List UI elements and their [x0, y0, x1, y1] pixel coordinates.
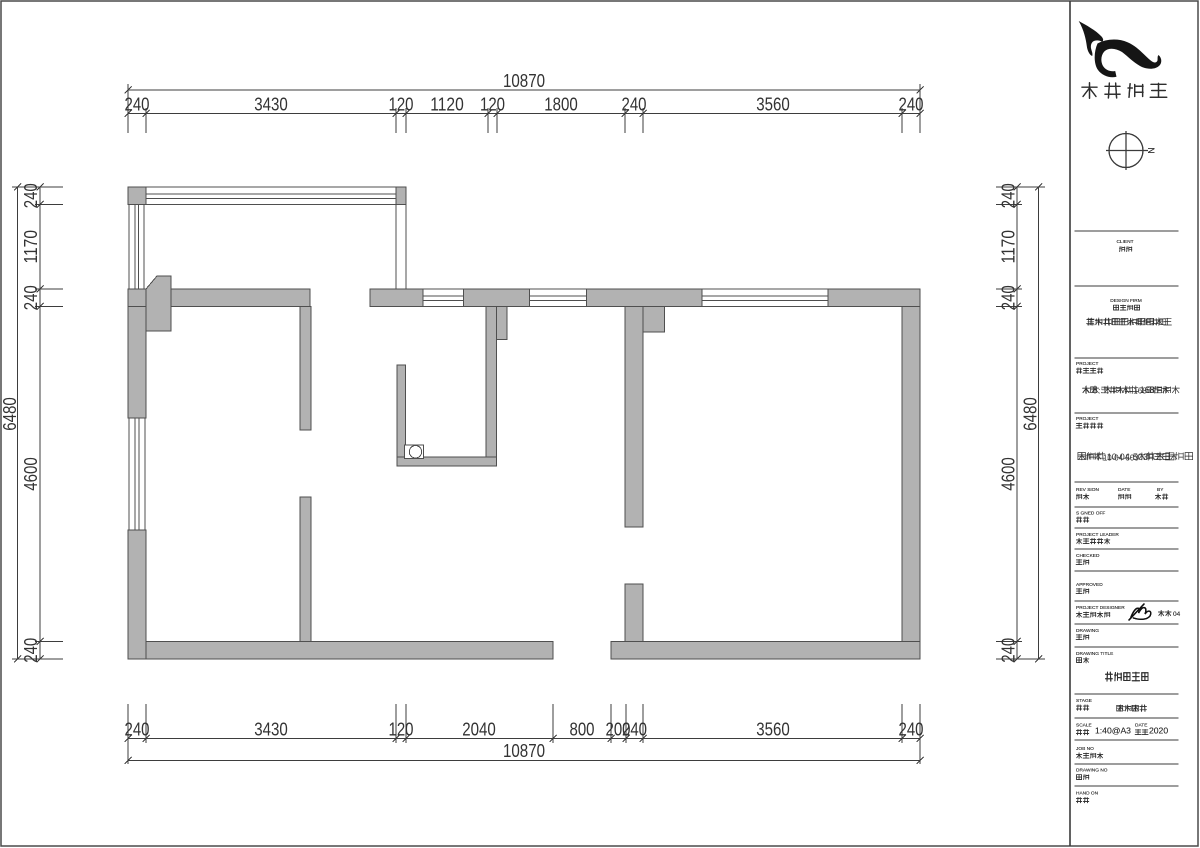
svg-text:10-04-503: 10-04-503 [1107, 452, 1148, 462]
svg-text:PROJECT LEADER: PROJECT LEADER [1076, 532, 1119, 538]
svg-text:120: 120 [389, 720, 414, 740]
svg-text:HAND ON: HAND ON [1076, 791, 1099, 797]
svg-text:1170: 1170 [999, 230, 1019, 264]
svg-text:3560: 3560 [756, 720, 790, 740]
svg-text:240: 240 [999, 638, 1019, 663]
svg-text:168: 168 [1140, 385, 1155, 395]
svg-text:DRAWING: DRAWING [1076, 628, 1099, 634]
svg-text:120: 120 [389, 95, 414, 115]
svg-text:SCALE: SCALE [1076, 723, 1092, 729]
svg-text:DRAWING NO: DRAWING NO [1076, 768, 1108, 774]
svg-text:10870: 10870 [503, 741, 545, 761]
svg-text:CLIENT: CLIENT [1116, 239, 1133, 245]
svg-text:1:40@A3: 1:40@A3 [1095, 726, 1131, 736]
svg-text:PROJECT: PROJECT [1076, 416, 1098, 422]
svg-text:S GNED OFF: S GNED OFF [1076, 511, 1105, 517]
svg-text:APPROVED: APPROVED [1076, 582, 1103, 588]
svg-text:800: 800 [570, 720, 595, 740]
svg-text:REV SION: REV SION [1076, 487, 1099, 493]
svg-text:2020: 2020 [1149, 726, 1168, 736]
svg-text:CHECKED: CHECKED [1076, 553, 1100, 559]
svg-text:N: N [1146, 147, 1156, 154]
svg-text:4600: 4600 [999, 457, 1019, 491]
svg-text:240: 240 [21, 285, 41, 310]
svg-text::: : [1101, 385, 1103, 395]
svg-text:DESIGN FIRM: DESIGN FIRM [1110, 298, 1141, 304]
svg-text:4600: 4600 [21, 457, 41, 491]
svg-text:240: 240 [125, 720, 150, 740]
svg-text:240: 240 [999, 183, 1019, 208]
svg-text:6480: 6480 [0, 397, 20, 431]
svg-text:10870: 10870 [503, 71, 545, 91]
svg-text:240: 240 [622, 95, 647, 115]
svg-text:3430: 3430 [254, 720, 288, 740]
svg-text:2040: 2040 [462, 720, 496, 740]
svg-text:3560: 3560 [756, 95, 790, 115]
svg-text:240: 240 [999, 285, 1019, 310]
svg-text:STAGE: STAGE [1076, 698, 1092, 704]
svg-text:DATE: DATE [1135, 723, 1147, 729]
svg-text:240: 240 [125, 95, 150, 115]
svg-text:DRAWING TITLE: DRAWING TITLE [1076, 651, 1113, 657]
svg-text:1120: 1120 [430, 95, 464, 115]
svg-text:BY: BY [1157, 487, 1164, 493]
svg-text:240: 240 [622, 720, 647, 740]
svg-text:3430: 3430 [254, 95, 288, 115]
svg-text:PROJECT DESIGNER: PROJECT DESIGNER [1076, 605, 1125, 611]
svg-text:6480: 6480 [1021, 397, 1041, 431]
svg-text:240: 240 [21, 183, 41, 208]
svg-text:120: 120 [480, 95, 505, 115]
svg-text:240: 240 [21, 638, 41, 663]
svg-text:04: 04 [1173, 611, 1181, 618]
svg-text:240: 240 [899, 720, 924, 740]
svg-text:1170: 1170 [21, 230, 41, 264]
svg-text:PROJECT: PROJECT [1076, 361, 1098, 367]
svg-text:DATE: DATE [1118, 487, 1130, 493]
svg-text:240: 240 [899, 95, 924, 115]
svg-text:1800: 1800 [544, 95, 578, 115]
svg-text:JOB NO: JOB NO [1076, 746, 1094, 752]
